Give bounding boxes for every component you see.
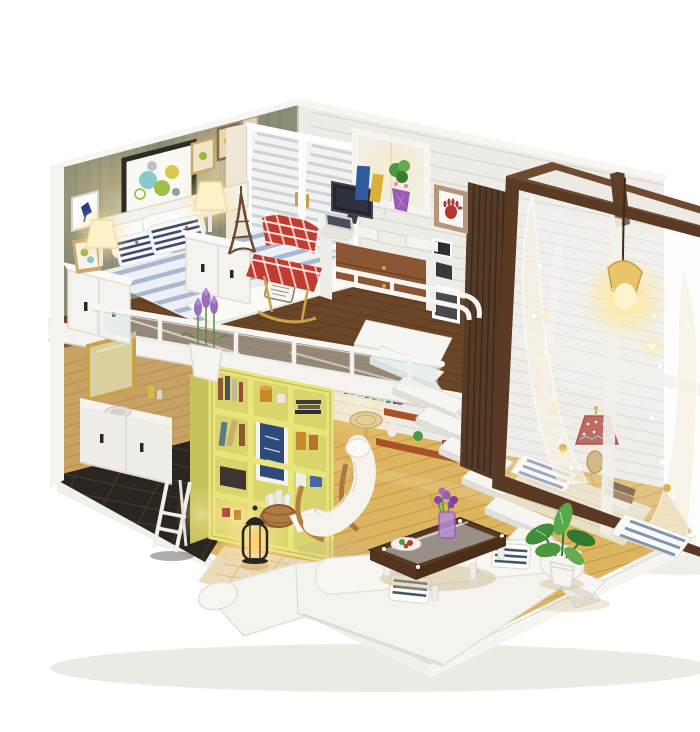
basket (262, 490, 296, 527)
table-lamp-right (179, 168, 243, 232)
dollhouse-product-photo (40, 16, 700, 716)
left-outer-edge (50, 162, 64, 488)
handprint-frame (434, 184, 468, 234)
dollhouse-illustration (40, 16, 700, 716)
ground-shadow (50, 644, 700, 692)
food-plate (391, 538, 421, 551)
